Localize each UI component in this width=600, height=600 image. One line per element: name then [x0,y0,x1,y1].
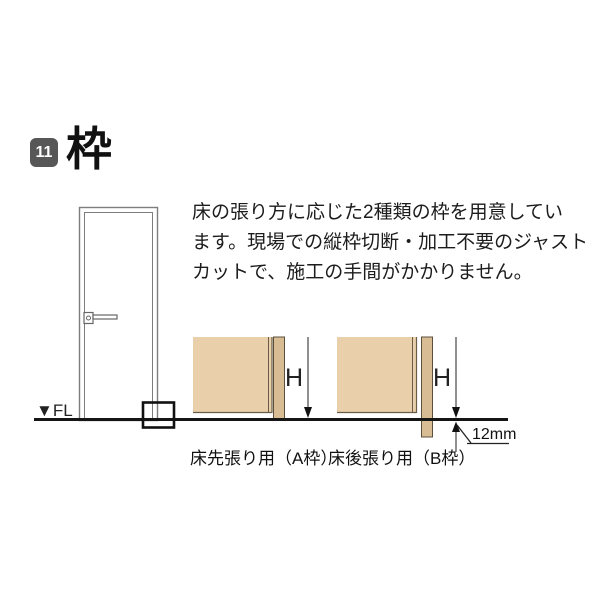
height-arrowhead-a [304,407,312,418]
door-elevation-drawing [80,208,158,421]
door-handle-lever [93,315,117,319]
wall-section-a [193,337,272,413]
offset-dimension-label: 12mm [472,426,516,444]
vertical-frame-a [274,337,285,419]
catalog-page: 11 枠 床の張り方に応じた2種類の枠を用意してい ます。現場での縦枠切断・加工… [0,0,600,600]
vertical-frame-b [422,337,433,437]
diagram-a-caption: 床先張り用（A枠） [190,444,337,469]
wall-section-b [337,337,417,413]
diagram-b-caption: 床後張り用（B枠） [328,444,475,469]
height-arrowhead-b [452,407,460,418]
height-label-a: H [285,364,303,393]
floor-level-label: ▼FL [36,401,73,421]
height-label-b: H [433,364,451,393]
door-handle-plate [84,313,93,324]
offset-leader-line [457,425,471,443]
frame-illustration [0,0,600,600]
